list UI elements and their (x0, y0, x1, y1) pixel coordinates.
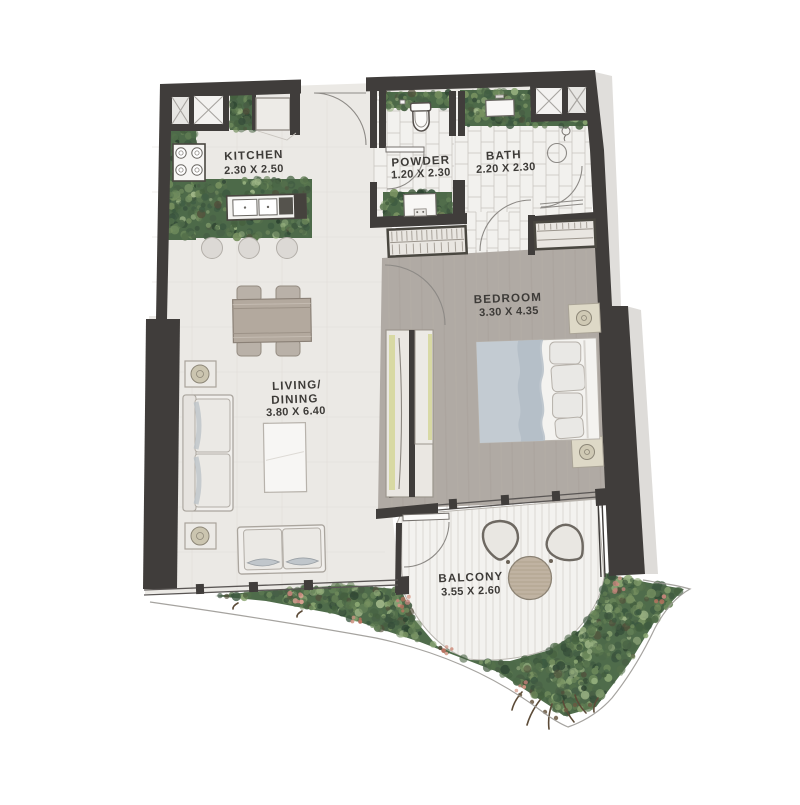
svg-text:2.30 X 2.50: 2.30 X 2.50 (224, 163, 284, 177)
svg-text:3.80 X 6.40: 3.80 X 6.40 (266, 405, 326, 419)
svg-text:KITCHEN: KITCHEN (224, 148, 284, 163)
svg-text:LIVING/: LIVING/ (272, 378, 322, 393)
svg-text:BATH: BATH (486, 148, 522, 163)
svg-text:3.30 X 4.35: 3.30 X 4.35 (479, 305, 539, 319)
svg-text:BEDROOM: BEDROOM (474, 291, 543, 307)
svg-text:3.55 X 2.60: 3.55 X 2.60 (441, 584, 501, 598)
svg-text:BALCONY: BALCONY (438, 570, 503, 585)
